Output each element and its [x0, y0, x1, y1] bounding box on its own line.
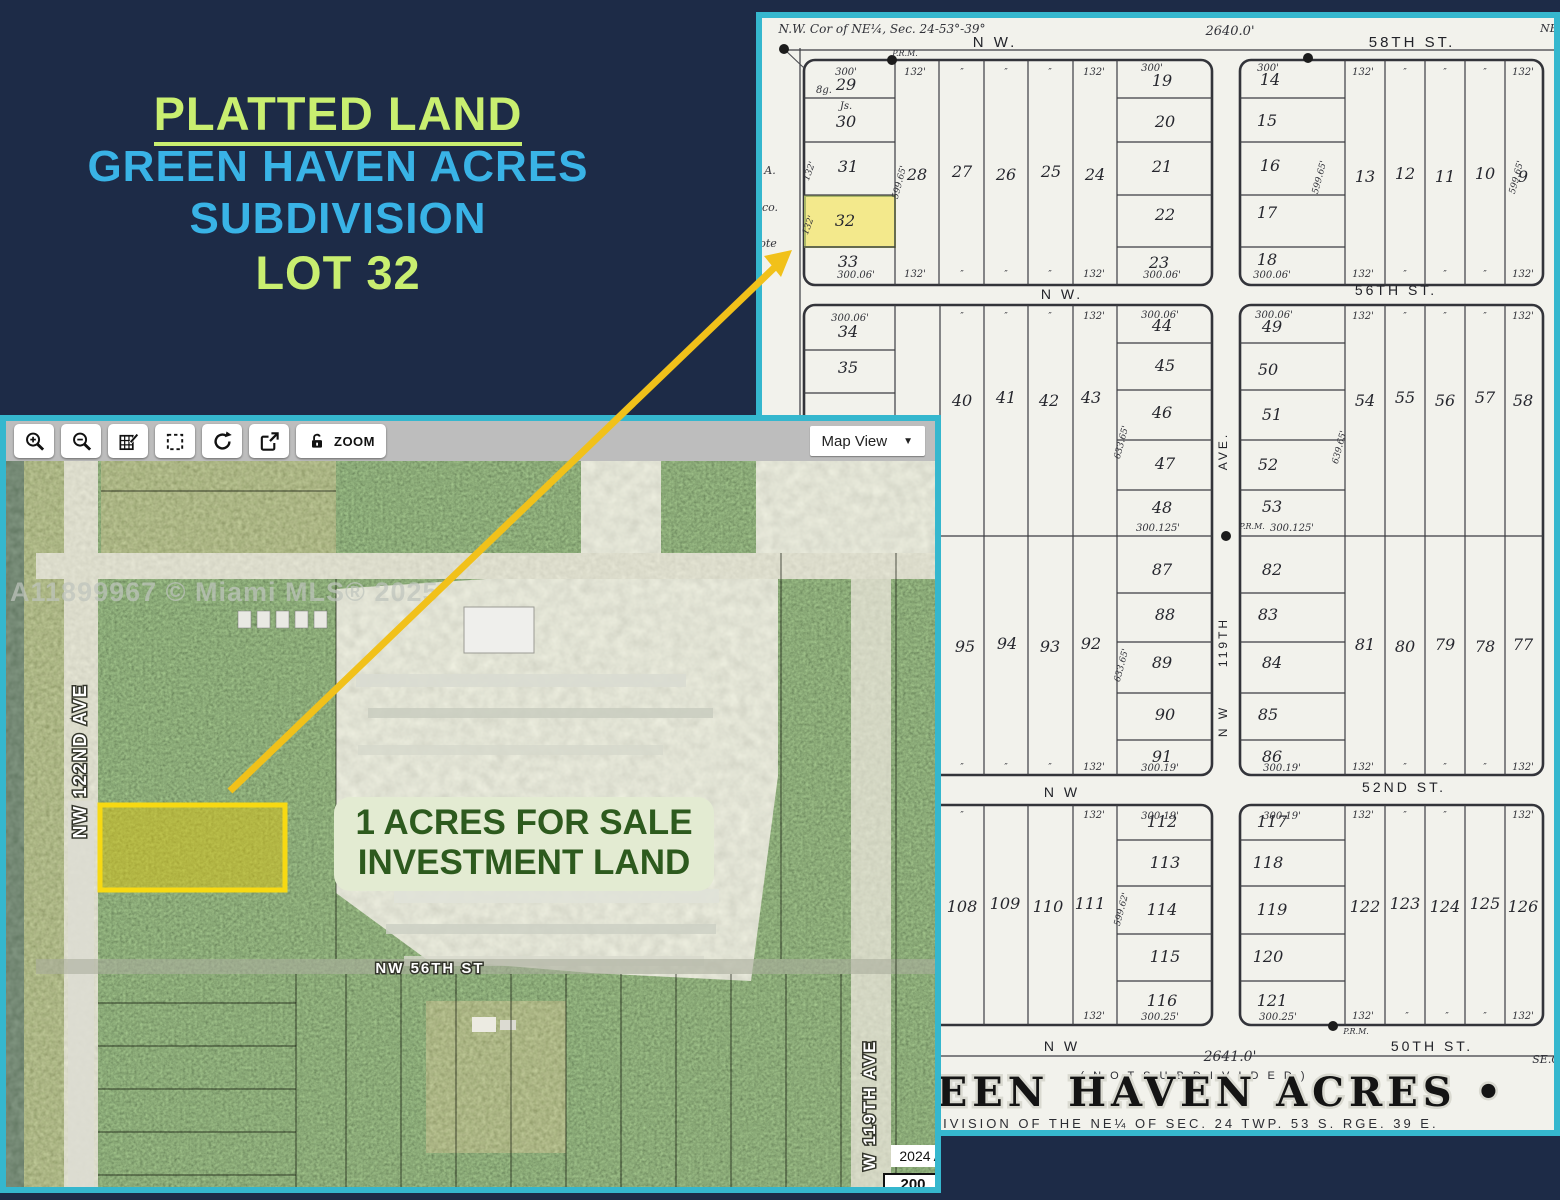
cleared-top-left [101, 461, 336, 553]
plat-label: 8g. [816, 85, 832, 96]
plot-edit-button[interactable] [108, 424, 148, 458]
plat-label: 50TH ST. [1391, 1038, 1473, 1054]
plat-lot-number: 80 [1395, 637, 1415, 656]
plat-label: ″ [1483, 1012, 1487, 1022]
headline-platted-land: PLATTED LAND [18, 86, 658, 141]
plat-label: 300.19' [1263, 811, 1301, 822]
plat-block [1240, 305, 1543, 775]
plat-label: ″ [1483, 763, 1487, 773]
plat-label: A. [763, 164, 775, 177]
plat-lot-number: 25 [1040, 162, 1061, 181]
plat-lot-number: 55 [1395, 388, 1415, 407]
plat-lot-number: 94 [997, 634, 1017, 653]
plat-label: ″ [1443, 811, 1447, 821]
plat-lot-number: 113 [1150, 853, 1181, 872]
plat-label: N W [1044, 784, 1080, 800]
plat-label: 132' [1083, 1011, 1105, 1022]
zoom-in-icon [23, 430, 46, 453]
plat-label: ″ [1403, 312, 1407, 322]
street-label-122nd-ave: NW 122ND AVE [70, 683, 90, 838]
canal [6, 461, 26, 1187]
plat-label: A SUBDIVISION OF THE NE¼ OF SEC. 24 TWP.… [877, 1116, 1438, 1130]
plat-lot-number: 56 [1435, 391, 1455, 410]
plat-lot-number: 118 [1253, 853, 1284, 872]
prm-monument-dot [1221, 531, 1231, 541]
plat-label: ″ [1443, 270, 1447, 280]
select-area-button[interactable] [155, 424, 195, 458]
plat-label: P.R.M. [891, 49, 918, 58]
mls-watermark: A11899967 © Miami MLS® 2025 [10, 577, 439, 608]
plat-lot-number: 124 [1430, 897, 1461, 916]
aerial-year-label: 2024 A [891, 1145, 941, 1167]
plat-lot-number: 16 [1260, 156, 1280, 175]
plat-label: 2640.0' [1204, 24, 1254, 39]
plat-label: 300.19' [1263, 763, 1301, 774]
plat-lot-number: 21 [1151, 157, 1172, 176]
export-icon [258, 430, 281, 453]
plat-lot-number: 15 [1257, 111, 1277, 130]
plat-label: N.W. Cor of NE¼, Sec. 24-53°-39° [778, 22, 986, 36]
plat-label: ″ [1483, 312, 1487, 322]
plat-label: 132' [1512, 67, 1534, 78]
plat-lot-number: 81 [1355, 635, 1375, 654]
plat-lot-number: 83 [1258, 605, 1278, 624]
plat-label: 132' [1512, 269, 1534, 280]
plat-lot-number: 33 [838, 252, 858, 271]
plat-label: 132' [1083, 67, 1105, 78]
plat-label: 300' [1257, 63, 1279, 74]
zoom-lock-label: ZOOM [334, 434, 375, 449]
sale-banner: 1 ACRES FOR SALE INVESTMENT LAND [334, 797, 714, 891]
plat-lot-number: 115 [1150, 947, 1181, 966]
prm-monument-dot [1328, 1021, 1338, 1031]
aerial-scale-label: 200 [883, 1173, 941, 1193]
plat-lot-number: 48 [1151, 498, 1172, 517]
plat-lot-number: 46 [1151, 403, 1172, 422]
highlighted-lot-aerial [100, 805, 285, 890]
rotate-icon [211, 430, 234, 453]
plat-label: 58TH ST. [1369, 34, 1456, 51]
export-button[interactable] [249, 424, 289, 458]
plat-lot-number: 18 [1257, 250, 1277, 269]
plat-label: 132' [1352, 1011, 1374, 1022]
plat-lot-number: 114 [1147, 900, 1178, 919]
yard-top-right [581, 461, 935, 553]
plat-label: 132' [1083, 762, 1105, 773]
plat-label: ″ [1445, 1012, 1449, 1022]
warehouse-building [464, 607, 534, 653]
plat-label: 132' [1352, 311, 1374, 322]
plat-lot-number: 12 [1395, 164, 1415, 183]
plat-label: ″ [1403, 811, 1407, 821]
plat-label: 2641.0' [1203, 1049, 1257, 1065]
map-view-dropdown[interactable]: Map View ▼ [810, 426, 926, 456]
small-building [500, 1020, 516, 1030]
plat-lot-number: 84 [1262, 653, 1282, 672]
plat-lot-number: 10 [1475, 164, 1495, 183]
plat-label: 119TH [1216, 617, 1230, 667]
plat-lot-number: 58 [1513, 391, 1533, 410]
plat-lot-number: 43 [1080, 388, 1101, 407]
page-root: PLATTED LAND GREEN HAVEN ACRES SUBDIVISI… [0, 0, 1560, 1200]
plat-label: 132' [904, 269, 926, 280]
plat-lot-number: 45 [1154, 356, 1175, 375]
plat-lot-number: 53 [1262, 497, 1282, 516]
plat-lot-number: 90 [1155, 705, 1175, 724]
plat-label: 300.25' [1259, 1012, 1297, 1023]
plat-label: N W [1216, 705, 1230, 737]
plat-label: ″ [1443, 68, 1447, 78]
plat-label: ″ [960, 68, 964, 78]
street-label-56th-st: NW 56TH ST [375, 960, 484, 977]
plot-edit-icon [117, 430, 140, 453]
plat-label: 300.06' [831, 313, 869, 324]
plat-lot-number: 34 [838, 322, 858, 341]
plat-label: ″ [1483, 68, 1487, 78]
plat-lot-number: 111 [1075, 894, 1106, 913]
plat-lot-number: 30 [836, 112, 856, 131]
plat-label: 132' [1512, 311, 1534, 322]
plat-lot-number: 40 [951, 391, 972, 410]
plat-label: 300.25' [1141, 1012, 1179, 1023]
plat-label: AVE. [1216, 432, 1230, 470]
plat-lot-number: 31 [838, 157, 858, 176]
plat-lot-number: 85 [1258, 705, 1278, 724]
plat-label: 300.06' [837, 270, 875, 281]
plat-label: 300.06' [1255, 310, 1293, 321]
sale-banner-line1: 1 ACRES FOR SALE [338, 803, 710, 843]
plat-lot-number: 24 [1084, 165, 1105, 184]
plat-lot-number: 95 [955, 637, 975, 656]
plat-lot-number: 125 [1470, 894, 1501, 913]
plat-label: 132' [1083, 311, 1105, 322]
plat-lot-number: 88 [1155, 605, 1175, 624]
plat-lot-number: 120 [1253, 947, 1284, 966]
plat-lot-number: 126 [1508, 897, 1539, 916]
plat-label: ″ [1048, 763, 1052, 773]
plat-label: ″ [1403, 270, 1407, 280]
plat-lot-number: 51 [1262, 405, 1282, 424]
prm-monument-dot [779, 44, 789, 54]
plat-label: ote [762, 237, 777, 250]
rotate-button[interactable] [202, 424, 242, 458]
plat-lot-number: 35 [838, 358, 858, 377]
plat-lot-number: 11 [1435, 167, 1455, 186]
plat-label: ″ [1004, 68, 1008, 78]
plat-label: 300.125' [1136, 523, 1180, 534]
map-view-label: Map View [822, 433, 888, 450]
plat-lot-number: 13 [1355, 167, 1375, 186]
plat-label: 633.65' [1113, 425, 1131, 460]
plat-label: 132' [904, 67, 926, 78]
plat-label: 300' [835, 67, 857, 78]
plat-lot-number: 77 [1513, 635, 1534, 654]
plat-block [1240, 60, 1543, 285]
plat-lot-number: 78 [1475, 637, 1495, 656]
plat-label: 132' [1083, 810, 1105, 821]
plat-label: ″ [960, 312, 964, 322]
plat-label: NE [1539, 22, 1554, 35]
plat-label: ″ [1048, 270, 1052, 280]
plat-label: N W [1044, 1038, 1080, 1054]
unlock-icon [307, 431, 327, 451]
sale-banner-line2: INVESTMENT LAND [338, 843, 710, 883]
plat-lot-number: 20 [1154, 112, 1175, 131]
plat-label: 132' [1352, 762, 1374, 773]
plat-label: ″ [1405, 1012, 1409, 1022]
headline-subdivision-word: SUBDIVISION [18, 193, 658, 245]
chevron-down-icon: ▼ [903, 436, 913, 447]
plat-lot-number: 27 [951, 162, 973, 181]
plat-lot-number: 122 [1350, 897, 1381, 916]
plat-label: 300.19' [1141, 763, 1179, 774]
plat-label: ″ [1443, 312, 1447, 322]
plat-label: SE.C [1532, 1053, 1554, 1066]
plat-label: 639.65' [1331, 430, 1349, 465]
plat-label: 132' [1083, 269, 1105, 280]
plat-label: co. [762, 201, 778, 214]
plat-lot-number: 50 [1258, 360, 1278, 379]
road-top [36, 553, 935, 579]
plat-lot-number: 109 [990, 894, 1021, 913]
plat-lot-number: 22 [1154, 205, 1175, 224]
plat-label: ″ [1443, 763, 1447, 773]
plat-lot-number: 52 [1258, 455, 1278, 474]
plat-label: 132' [1512, 1011, 1534, 1022]
plat-label: 300.06' [1143, 270, 1181, 281]
plat-label: 599.62' [1113, 892, 1131, 927]
plat-lot-number: 89 [1152, 653, 1172, 672]
plat-label: ″ [1048, 68, 1052, 78]
aerial-map-area[interactable]: NW 122ND AVENW 56TH STW 119TH AVE A11899… [6, 461, 935, 1187]
plat-lot-number: 82 [1262, 560, 1282, 579]
plat-label: 300.125' [1270, 523, 1314, 534]
plat-label: ″ [960, 763, 964, 773]
plat-lot-number: 32 [835, 211, 855, 230]
plat-lot-number: 123 [1390, 894, 1421, 913]
headline-subdivision-name: GREEN HAVEN ACRES [18, 141, 658, 193]
plat-lot-number: 26 [995, 165, 1016, 184]
plat-lot-number: 110 [1033, 897, 1064, 916]
plat-label: ″ [1004, 763, 1008, 773]
aerial-map-panel: ZOOM Map View ▼ [0, 415, 941, 1193]
plat-label: 300.06' [1253, 270, 1291, 281]
plat-lot-number: 54 [1355, 391, 1375, 410]
plat-label: 56TH ST. [1355, 282, 1437, 298]
industrial-yard [336, 579, 778, 981]
plat-lot-number: 17 [1257, 203, 1278, 222]
zoom-out-button[interactable] [61, 424, 101, 458]
plat-lot-number: 116 [1147, 991, 1178, 1010]
plat-lot-number: 93 [1040, 637, 1060, 656]
plat-label: 132' [1352, 810, 1374, 821]
plat-label: ″ [1403, 763, 1407, 773]
plat-lot-number: 92 [1081, 634, 1101, 653]
plat-lot-number: 108 [947, 897, 978, 916]
plat-label: N W. [1041, 286, 1083, 302]
plat-label: 633.65' [1113, 648, 1131, 683]
plat-label: 300.19' [1141, 811, 1179, 822]
plat-lot-number: 119 [1257, 900, 1288, 919]
plat-label: 132' [1352, 67, 1374, 78]
map-toolbar: ZOOM Map View ▼ [6, 421, 935, 461]
plat-label: 132' [1352, 269, 1374, 280]
plat-label: 300' [1141, 63, 1163, 74]
plat-lot-number: 47 [1154, 454, 1176, 473]
plat-label: ″ [1483, 270, 1487, 280]
plat-label: ″ [1004, 270, 1008, 280]
plat-lot-number: 42 [1038, 391, 1059, 410]
plat-label: ″ [960, 811, 964, 821]
plat-label: Js. [838, 101, 852, 112]
select-area-icon [164, 430, 187, 453]
plat-label: 132' [1512, 810, 1534, 821]
plat-lot-number: 79 [1435, 635, 1455, 654]
zoom-lock-button[interactable]: ZOOM [296, 424, 386, 458]
plat-lot-number: 121 [1257, 991, 1288, 1010]
prm-monument-dot [1303, 53, 1313, 63]
plat-label: P.R.M. [1342, 1027, 1369, 1036]
zoom-out-icon [70, 430, 93, 453]
road-122nd-ave-south [68, 801, 94, 1187]
plat-label: N W. [973, 34, 1018, 51]
trees-top [661, 461, 756, 553]
plat-label: P.R.M. [1238, 522, 1265, 531]
plat-label: ″ [960, 270, 964, 280]
plat-lot-number: 41 [995, 388, 1016, 407]
plat-lot-number: 57 [1475, 388, 1496, 407]
plat-label: 599.65' [1311, 160, 1329, 195]
street-label-119th-ave: W 119TH AVE [860, 1040, 879, 1171]
headline: PLATTED LAND GREEN HAVEN ACRES SUBDIVISI… [18, 86, 658, 301]
small-building [472, 1017, 496, 1032]
plat-lot-number: 87 [1152, 560, 1173, 579]
plat-label: 52ND ST. [1362, 779, 1446, 795]
plat-label: 132' [1512, 762, 1534, 773]
plat-label: ″ [1048, 312, 1052, 322]
plat-label: ″ [1403, 68, 1407, 78]
road-56th-st [36, 959, 935, 974]
plat-label: 300.06' [1141, 310, 1179, 321]
headline-lot: LOT 32 [18, 245, 658, 300]
plat-label: ″ [1004, 312, 1008, 322]
zoom-in-button[interactable] [14, 424, 54, 458]
